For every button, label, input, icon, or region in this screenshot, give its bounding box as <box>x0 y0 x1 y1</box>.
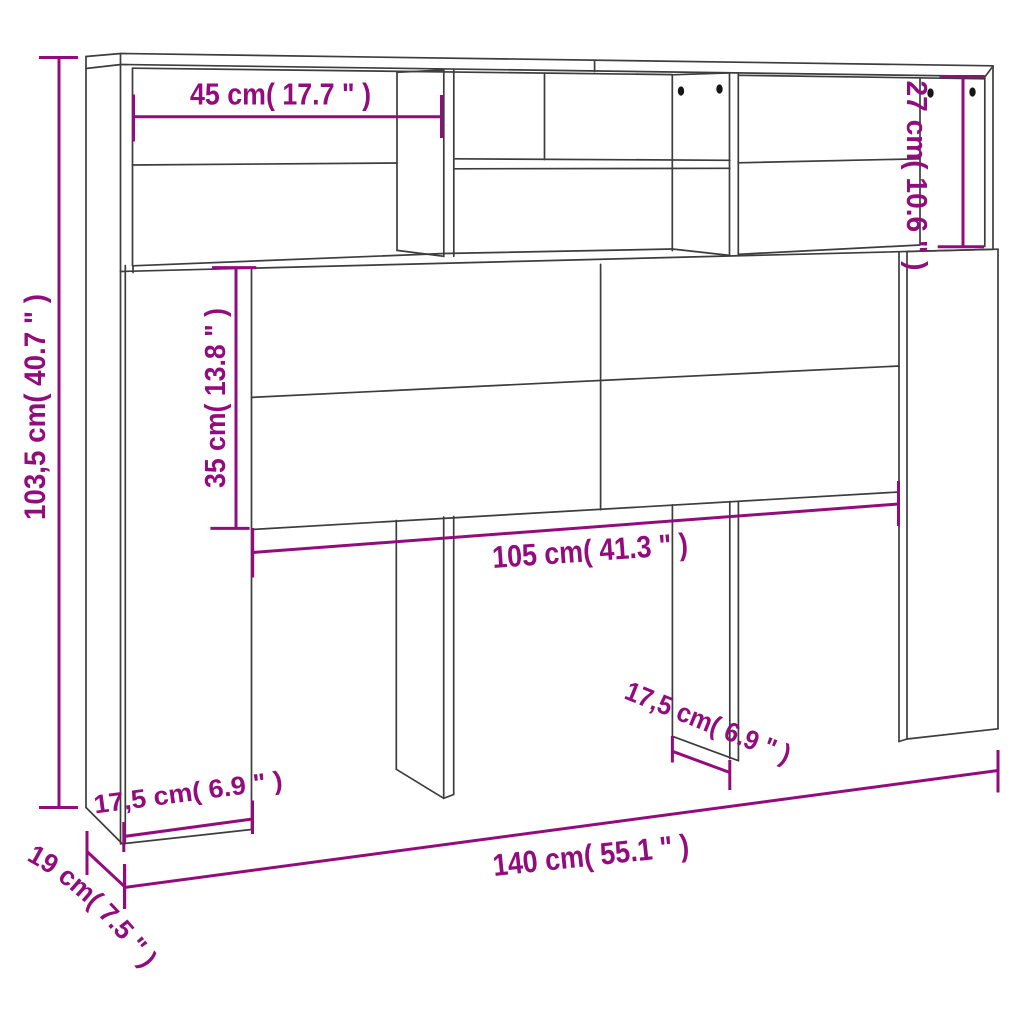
svg-text:35 cm( 13.8 " ): 35 cm( 13.8 " ) <box>200 308 232 488</box>
svg-text:27 cm( 10.6 " ): 27 cm( 10.6 " ) <box>900 81 932 271</box>
svg-text:103,5 cm( 40.7 " ): 103,5 cm( 40.7 " ) <box>19 294 52 520</box>
svg-text:45 cm( 17.7 " ): 45 cm( 17.7 " ) <box>190 77 371 112</box>
